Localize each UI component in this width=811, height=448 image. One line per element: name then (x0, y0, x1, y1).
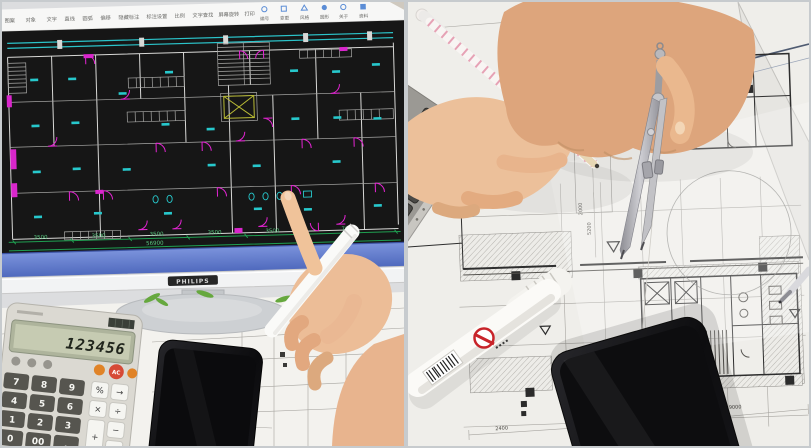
ac-key-label: AC (112, 370, 121, 377)
key-2[interactable]: 2 (36, 418, 43, 429)
dim-total-label: 56900 (146, 241, 164, 248)
thumbnail (675, 122, 685, 135)
key-9[interactable]: 9 (68, 383, 75, 394)
key-6[interactable]: 6 (66, 402, 73, 413)
key-3[interactable]: 3 (64, 421, 71, 432)
photo-collage: 图案 对象 文字 直线 圆弧 偏移 隐藏标注 标注设置 比例 文字查找 屏幕旋转… (0, 0, 811, 448)
right-photo-panel: 2400 9000 30700 5200 2000 200 (408, 2, 809, 446)
key-dot[interactable]: . (64, 440, 68, 446)
thumb (504, 160, 560, 166)
key-plus[interactable]: + (91, 432, 99, 443)
key-divide[interactable]: ÷ (114, 407, 122, 418)
key-4[interactable]: 4 (10, 396, 17, 407)
dim-2400: 2400 (495, 425, 508, 432)
dim-label: 3500 (92, 233, 107, 239)
key-arrow[interactable]: → (116, 388, 124, 399)
key-minus[interactable]: − (112, 426, 120, 437)
tool-icon (360, 4, 366, 10)
key-0[interactable]: 0 (7, 434, 14, 445)
dim-label: 3500 (265, 228, 280, 234)
smartphone (143, 339, 264, 446)
cad-screen (2, 20, 404, 254)
brand-label: PHILIPS (176, 278, 210, 286)
key-00[interactable]: 00 (31, 437, 45, 446)
dim-label: 3500 (34, 235, 49, 241)
key-8[interactable]: 8 (40, 380, 47, 391)
key-multiply[interactable]: × (94, 405, 102, 416)
dim-label: 3500 (149, 232, 164, 238)
pencil-lead (595, 164, 599, 168)
key-percent[interactable]: % (95, 386, 104, 397)
key-equals[interactable]: = (110, 445, 118, 446)
calculator: 123456 AC 7 8 9 4 5 6 1 2 3 0 00 . (2, 302, 143, 446)
key-5[interactable]: 5 (38, 399, 45, 410)
dim-label: 3500 (207, 230, 222, 236)
key-1[interactable]: 1 (8, 415, 15, 426)
left-photo-panel: 图案 对象 文字 直线 圆弧 偏移 隐藏标注 标注设置 比例 文字查找 屏幕旋转… (2, 2, 404, 446)
key-7[interactable]: 7 (12, 377, 19, 388)
